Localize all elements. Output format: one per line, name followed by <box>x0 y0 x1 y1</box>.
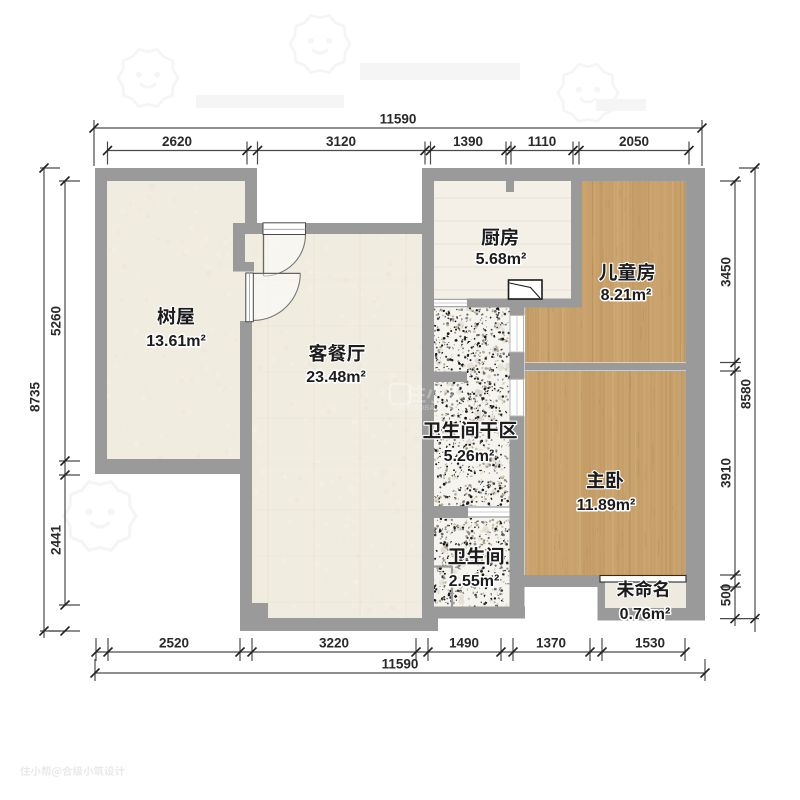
svg-text:500: 500 <box>719 584 734 607</box>
svg-text:1390: 1390 <box>453 134 483 149</box>
svg-text:3220: 3220 <box>319 636 349 651</box>
svg-text:0.76m²: 0.76m² <box>620 606 671 623</box>
svg-text:2620: 2620 <box>162 134 192 149</box>
svg-text:1490: 1490 <box>449 636 479 651</box>
svg-text:1110: 1110 <box>528 134 557 149</box>
svg-text:11.89m²: 11.89m² <box>577 497 636 514</box>
svg-text:2.55m²: 2.55m² <box>449 573 500 590</box>
svg-text:1530: 1530 <box>635 636 665 651</box>
svg-text:5260: 5260 <box>49 306 64 336</box>
svg-text:3120: 3120 <box>326 134 356 149</box>
svg-text:13.61m²: 13.61m² <box>146 333 206 350</box>
svg-text:1370: 1370 <box>536 636 566 651</box>
svg-text:5.26m²: 5.26m² <box>444 448 495 465</box>
svg-text:3450: 3450 <box>719 257 734 287</box>
svg-text:8735: 8735 <box>28 381 43 412</box>
svg-text:11590: 11590 <box>380 112 417 127</box>
svg-text:23.48m²: 23.48m² <box>306 369 366 386</box>
svg-text:ZHUXIAOBANG.COM: ZHUXIAOBANG.COM <box>393 405 464 412</box>
svg-text:11590: 11590 <box>382 657 419 672</box>
svg-text:8580: 8580 <box>739 379 754 409</box>
svg-text:2441: 2441 <box>49 524 64 555</box>
svg-text:2050: 2050 <box>619 134 649 149</box>
svg-text:2520: 2520 <box>159 636 189 651</box>
svg-text:8.21m²: 8.21m² <box>601 287 652 304</box>
svg-text:3910: 3910 <box>719 458 734 488</box>
svg-text:5.68m²: 5.68m² <box>476 251 527 268</box>
